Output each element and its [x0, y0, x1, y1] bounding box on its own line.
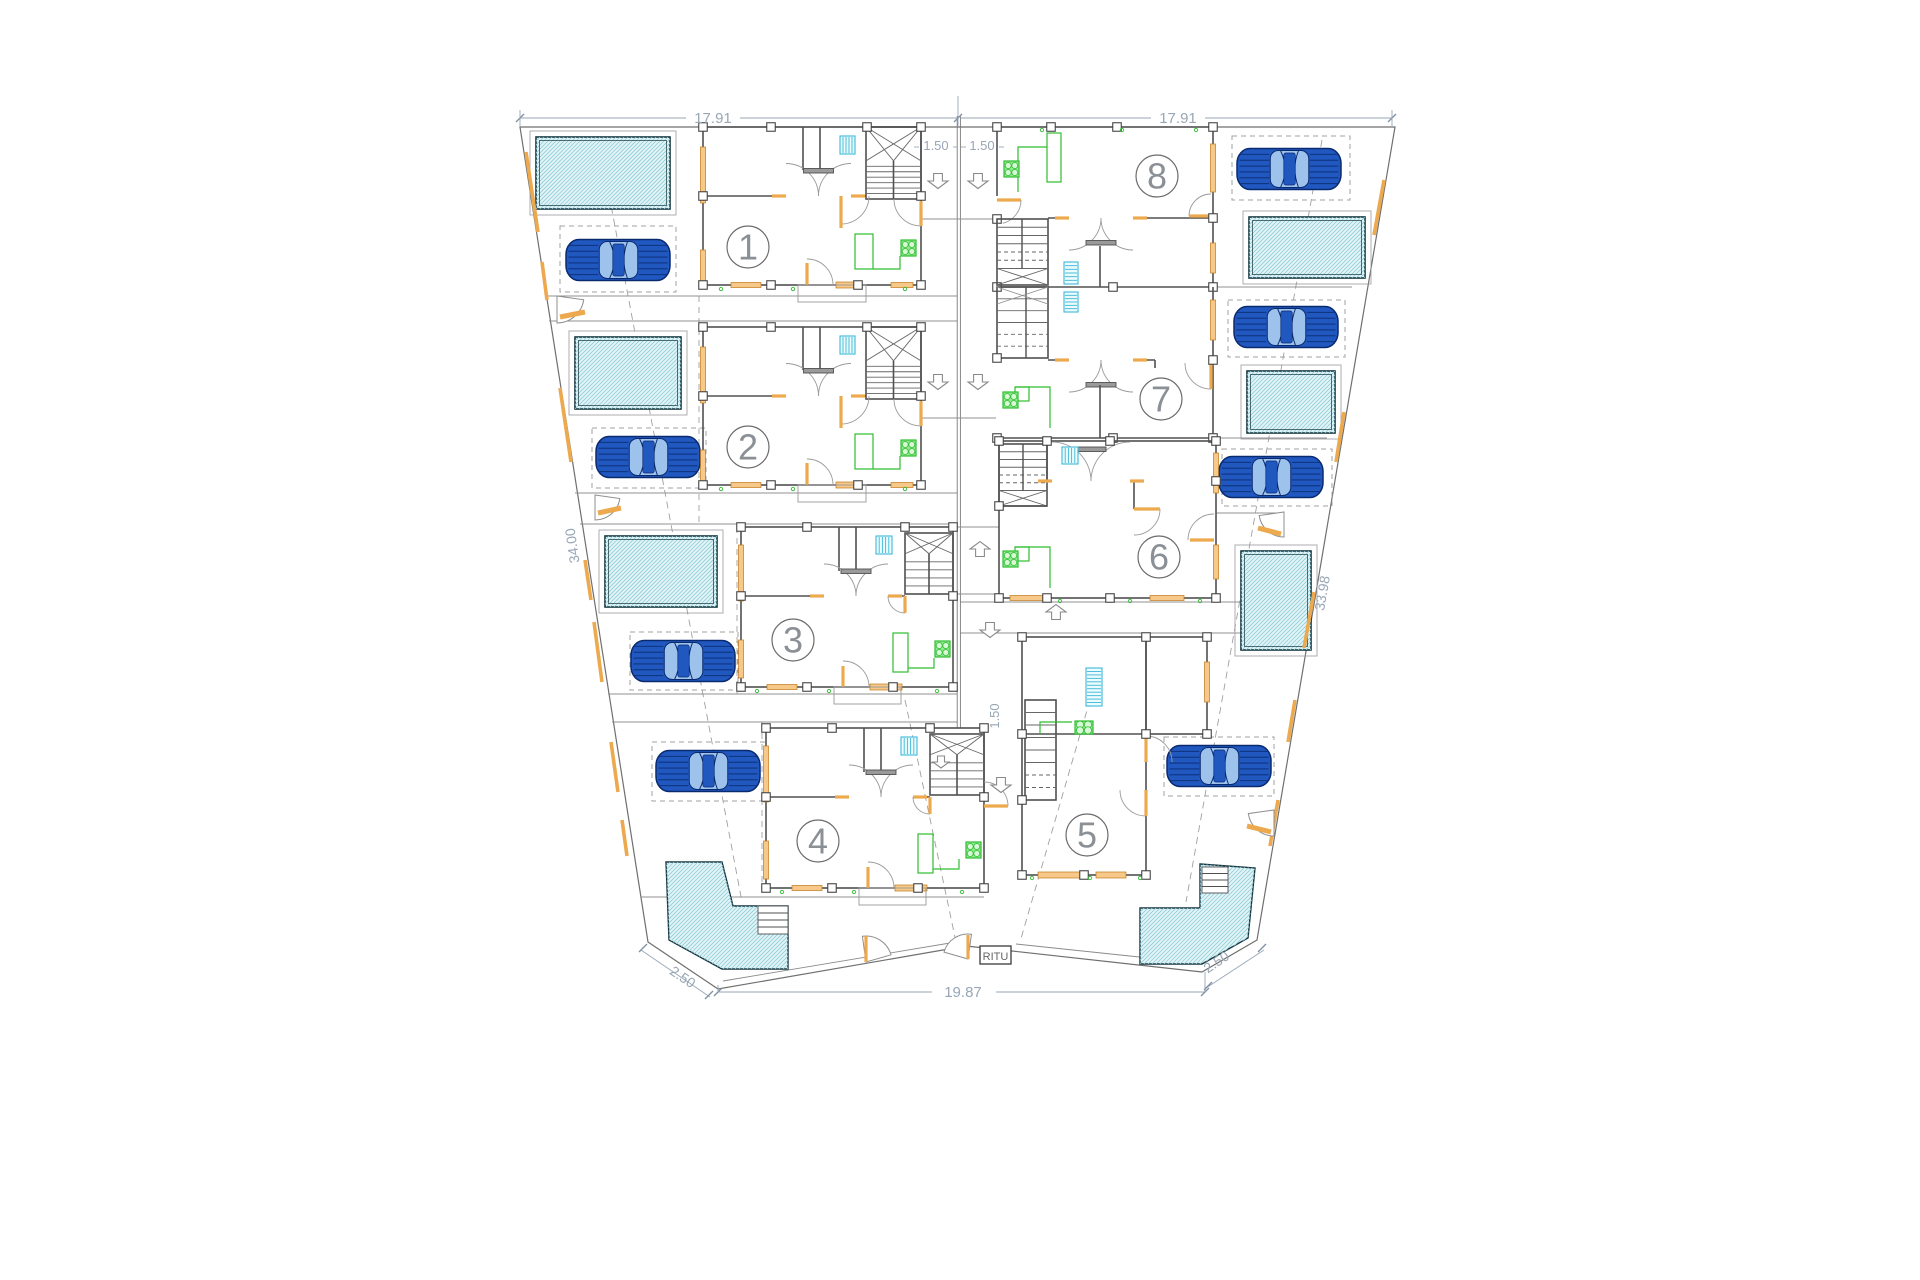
svg-text:17.91: 17.91: [1159, 110, 1197, 127]
svg-text:1: 1: [738, 227, 758, 268]
svg-text:2: 2: [738, 427, 758, 468]
svg-text:1.50: 1.50: [969, 138, 994, 153]
svg-text:19.87: 19.87: [944, 984, 982, 1001]
svg-text:RITU: RITU: [983, 951, 1009, 963]
svg-text:1.50: 1.50: [923, 138, 948, 153]
svg-text:8: 8: [1147, 156, 1167, 197]
svg-text:5: 5: [1077, 815, 1097, 856]
svg-text:4: 4: [808, 821, 828, 862]
svg-text:3: 3: [783, 620, 803, 661]
svg-text:17.91: 17.91: [694, 110, 732, 127]
svg-text:1.50: 1.50: [987, 703, 1002, 728]
svg-text:6: 6: [1149, 537, 1169, 578]
svg-text:7: 7: [1151, 379, 1171, 420]
